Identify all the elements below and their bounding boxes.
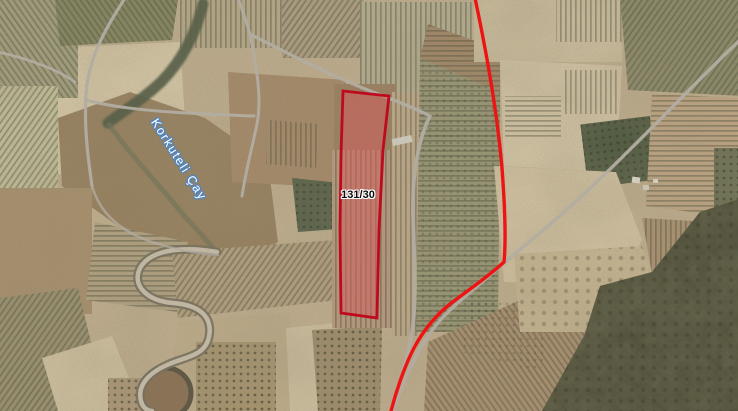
satellite-imagery xyxy=(0,0,738,411)
parcel-label: 131/30 xyxy=(336,189,380,202)
map-canvas[interactable]: Korkuteli Çay 131/30 xyxy=(0,0,738,411)
